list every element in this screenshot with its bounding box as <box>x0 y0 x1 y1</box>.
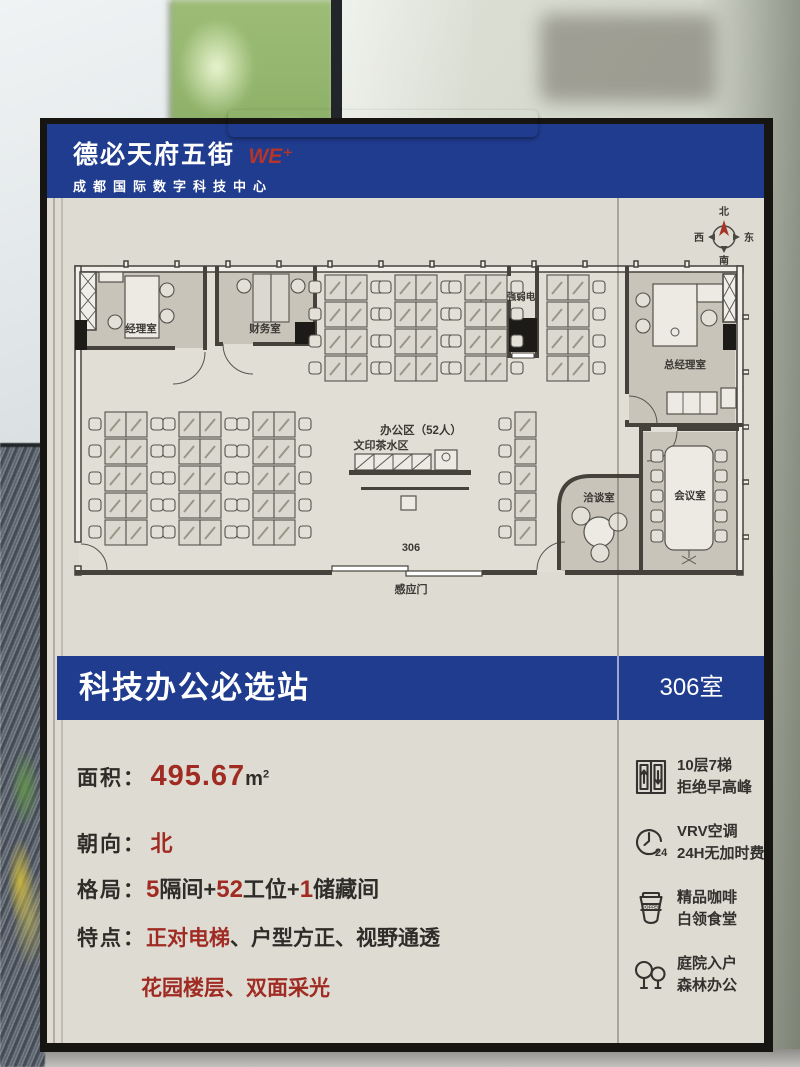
amenity-garden: 庭院入户 森林办公 <box>631 952 765 998</box>
room-label-manager: 经理室 <box>125 322 157 335</box>
compass-icon: 北 东 南 西 <box>693 204 755 266</box>
clock-24-icon: 24 <box>631 823 677 863</box>
room-label-finance: 财务室 <box>248 322 281 335</box>
room-label-negotiation: 洽谈室 <box>583 491 615 504</box>
elevator-icon <box>631 757 677 797</box>
amenity-line: 10层7梯 <box>677 755 752 777</box>
compass: 北 东 南 西 <box>693 204 755 266</box>
scene: 德必天府五街 WE⁺ 成都国际数字科技中心 北 东 南 西 <box>0 0 800 1067</box>
room-label-meeting: 会议室 <box>674 489 706 502</box>
sofa <box>667 392 717 414</box>
amenity-line: 白领食堂 <box>677 909 737 931</box>
coffee-icon: COFFEE <box>631 889 677 929</box>
title-banner: 科技办公必选站 306室 <box>57 656 764 720</box>
amenity-line: VRV空调 <box>677 821 765 843</box>
fold-line-left <box>53 124 55 1043</box>
poster-board: 德必天府五街 WE⁺ 成都国际数字科技中心 北 东 南 西 <box>40 118 773 1052</box>
sliding-door-panel <box>332 566 408 571</box>
svg-text:东: 东 <box>744 231 754 244</box>
room-label-gm: 总经理室 <box>664 358 706 371</box>
banner-room-number: 306室 <box>619 656 764 720</box>
floor-plan: 经理室 财务室 <box>69 260 749 600</box>
spec-layout: 格局：5隔间+52工位+1储藏间 <box>77 872 379 904</box>
shaft <box>723 324 736 350</box>
trees-icon <box>631 955 677 995</box>
amenity-line: 庭院入户 <box>677 953 737 975</box>
sliding-door-panel <box>406 571 482 576</box>
label-room-number: 306 <box>402 542 420 554</box>
brand-logo: 德必天府五街 <box>73 141 235 169</box>
spec-features: 特点：正对电梯、户型方正、视野通透 <box>77 922 440 952</box>
amenity-line: 精品咖啡 <box>677 887 737 909</box>
amenities-column: 10层7梯 拒绝早高峰 24 VRV空调 24H无加时费 <box>631 754 765 1018</box>
column <box>75 320 87 350</box>
label-print-tea: 文印茶水区 <box>354 438 409 452</box>
glass-reflection <box>540 14 715 102</box>
carpet-floor <box>0 443 45 1067</box>
wall-right <box>737 266 743 575</box>
poster-clip <box>228 110 538 137</box>
brand-mark-logo: WE⁺ <box>248 145 293 168</box>
label-office-area: 办公区（52人） <box>380 423 462 437</box>
header-subtitle: 成都国际数字科技中心 <box>73 176 764 195</box>
amenity-elevator: 10层7梯 拒绝早高峰 <box>631 754 765 800</box>
compass-north-arrow <box>719 220 729 236</box>
label-sensor-door: 感应门 <box>395 582 428 596</box>
banner-title: 科技办公必选站 <box>79 656 310 720</box>
amenity-line: 拒绝早高峰 <box>677 777 752 799</box>
spec-features-line2: 花园楼层、双面采光 <box>77 972 330 1002</box>
svg-text:24: 24 <box>655 847 668 859</box>
fold-line-left-2 <box>61 124 63 1043</box>
spec-orientation: 朝向： 北 <box>77 826 172 858</box>
svg-text:西: 西 <box>694 232 704 244</box>
svg-text:COFFEE: COFFEE <box>642 905 661 910</box>
svg-text:北: 北 <box>719 205 729 218</box>
amenity-hvac: 24 VRV空调 24H无加时费 <box>631 820 765 866</box>
amenity-coffee: COFFEE 精品咖啡 白领食堂 <box>631 886 765 932</box>
reception-counter <box>361 487 469 490</box>
spec-area: 面积： 495.67m2 <box>77 760 269 793</box>
amenity-line: 森林办公 <box>677 975 737 997</box>
fold-line-right <box>617 124 619 1043</box>
amenity-line: 24H无加时费 <box>677 843 765 865</box>
